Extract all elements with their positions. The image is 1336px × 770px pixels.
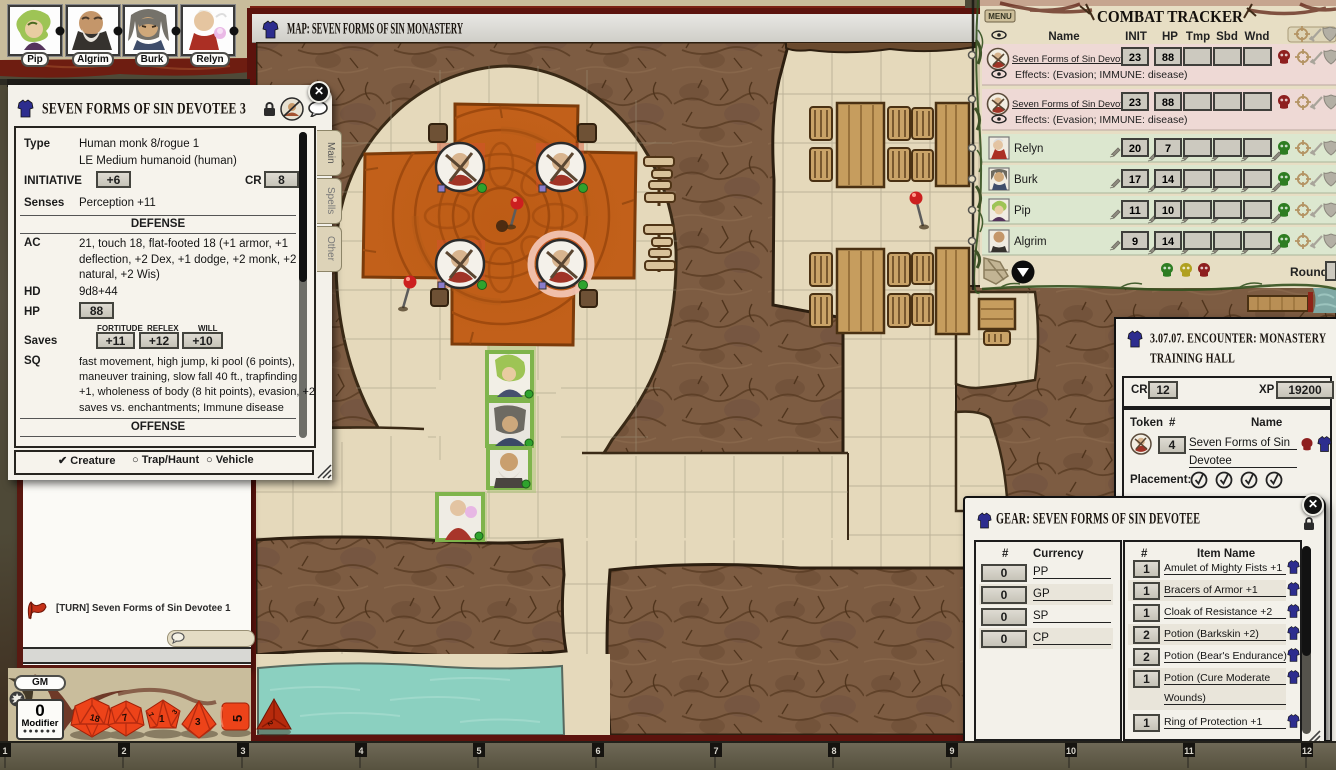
svg-text:Wnd: Wnd (1245, 31, 1270, 43)
svg-text:5: 5 (476, 746, 481, 756)
svg-text:3: 3 (240, 746, 245, 756)
svg-text:10: 10 (1162, 205, 1174, 217)
svg-text:88: 88 (1162, 97, 1174, 109)
svg-text:Sbd: Sbd (1216, 31, 1238, 43)
svg-text:COMBAT TRACKER: COMBAT TRACKER (1097, 7, 1244, 26)
svg-text:Tmp: Tmp (1186, 31, 1210, 43)
svg-text:11: 11 (1184, 746, 1194, 756)
svg-text:20: 20 (1129, 143, 1141, 155)
svg-text:4: 4 (358, 746, 363, 756)
svg-text:3: 3 (195, 717, 201, 728)
svg-text:Pip: Pip (1014, 205, 1031, 217)
svg-text:8: 8 (831, 746, 836, 756)
svg-text:Seven Forms of Sin Devot…: Seven Forms of Sin Devot… (1012, 54, 1132, 65)
svg-text:10: 10 (1066, 746, 1076, 756)
svg-text:1: 1 (2, 746, 7, 756)
svg-text:14: 14 (1162, 174, 1175, 186)
svg-text:23: 23 (1129, 97, 1141, 109)
svg-text:17: 17 (1129, 174, 1141, 186)
svg-text:MENU: MENU (988, 12, 1012, 21)
svg-text:HP: HP (1162, 31, 1178, 43)
svg-text:5: 5 (230, 715, 245, 722)
svg-text:Effects: (Evasion; IMMUNE: dis: Effects: (Evasion; IMMUNE: disease) (1015, 114, 1188, 126)
svg-text:14: 14 (1162, 236, 1175, 248)
svg-text:Algrim: Algrim (1014, 236, 1047, 248)
svg-text:Relyn: Relyn (1014, 143, 1043, 155)
svg-text:1: 1 (159, 714, 165, 725)
svg-text:12: 12 (1302, 746, 1312, 756)
svg-text:9: 9 (1132, 236, 1138, 248)
svg-text:Name: Name (1048, 31, 1079, 43)
svg-text:88: 88 (1162, 52, 1174, 64)
svg-text:Effects: (Evasion; IMMUNE: dis: Effects: (Evasion; IMMUNE: disease) (1015, 69, 1188, 81)
svg-text:6: 6 (595, 746, 600, 756)
svg-text:7: 7 (713, 746, 718, 756)
svg-text:11: 11 (1129, 205, 1141, 217)
svg-text:Seven Forms of Sin Devot…: Seven Forms of Sin Devot… (1012, 99, 1132, 110)
svg-text:INIT: INIT (1125, 31, 1147, 43)
svg-text:Burk: Burk (1014, 174, 1038, 186)
svg-text:2: 2 (121, 746, 126, 756)
svg-text:Round: Round (1290, 265, 1328, 279)
svg-text:9: 9 (949, 746, 954, 756)
svg-text:7: 7 (1165, 143, 1171, 155)
svg-text:23: 23 (1129, 52, 1141, 64)
